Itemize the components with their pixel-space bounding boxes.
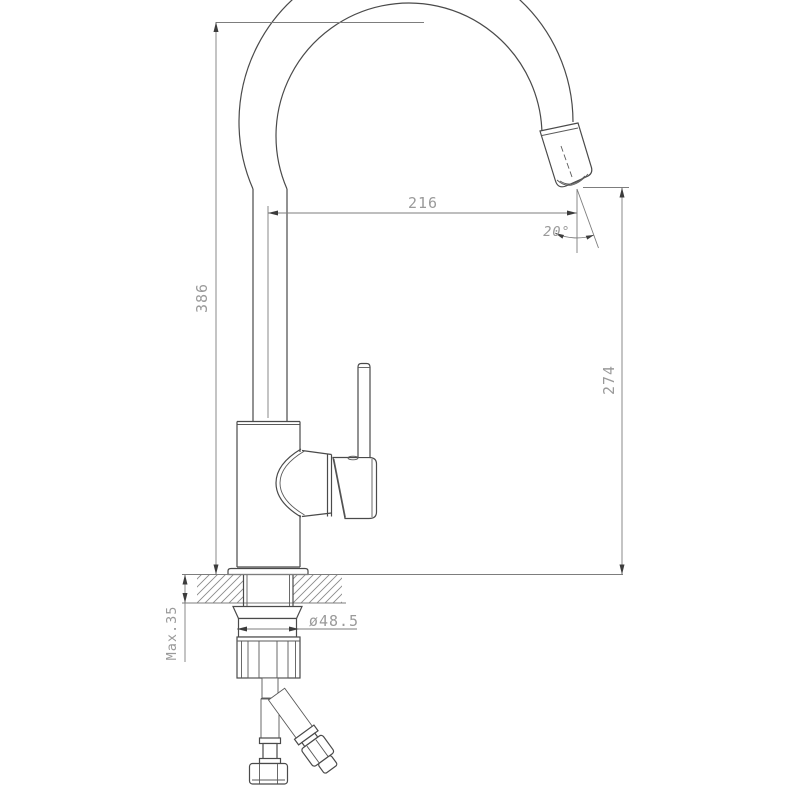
base-plate — [228, 569, 308, 575]
mounting-flange — [233, 607, 302, 619]
aerator-head — [540, 123, 592, 187]
label-spout-angle: 20° — [543, 224, 570, 240]
dimension-max-thickness: Max.35 — [164, 575, 188, 663]
dimension-spout-reach: 216 — [268, 194, 577, 418]
spout-neck — [253, 189, 287, 422]
faucet-dimension-drawing: 386 216 20° 274 Max.35 ø48.5 — [0, 0, 800, 800]
label-mounting-diameter: ø48.5 — [309, 612, 359, 630]
faucet-body — [228, 422, 308, 575]
handle-assembly — [276, 364, 377, 519]
handle-lever — [358, 364, 370, 458]
label-outlet-height: 274 — [600, 365, 618, 395]
dimension-outlet-height: 274 — [583, 188, 629, 575]
hose-hex-nut — [250, 764, 288, 785]
dimension-overall-height: 386 — [193, 22, 424, 575]
castellated-nut — [237, 637, 300, 678]
mounting-hardware — [233, 607, 302, 679]
countertop-section — [182, 575, 623, 607]
label-max-thickness: Max.35 — [164, 606, 180, 661]
spout-gooseneck-arc — [239, 0, 573, 189]
label-spout-reach: 216 — [408, 194, 438, 212]
label-overall-height: 386 — [193, 283, 211, 313]
dimension-spout-angle: 20° — [543, 189, 598, 253]
